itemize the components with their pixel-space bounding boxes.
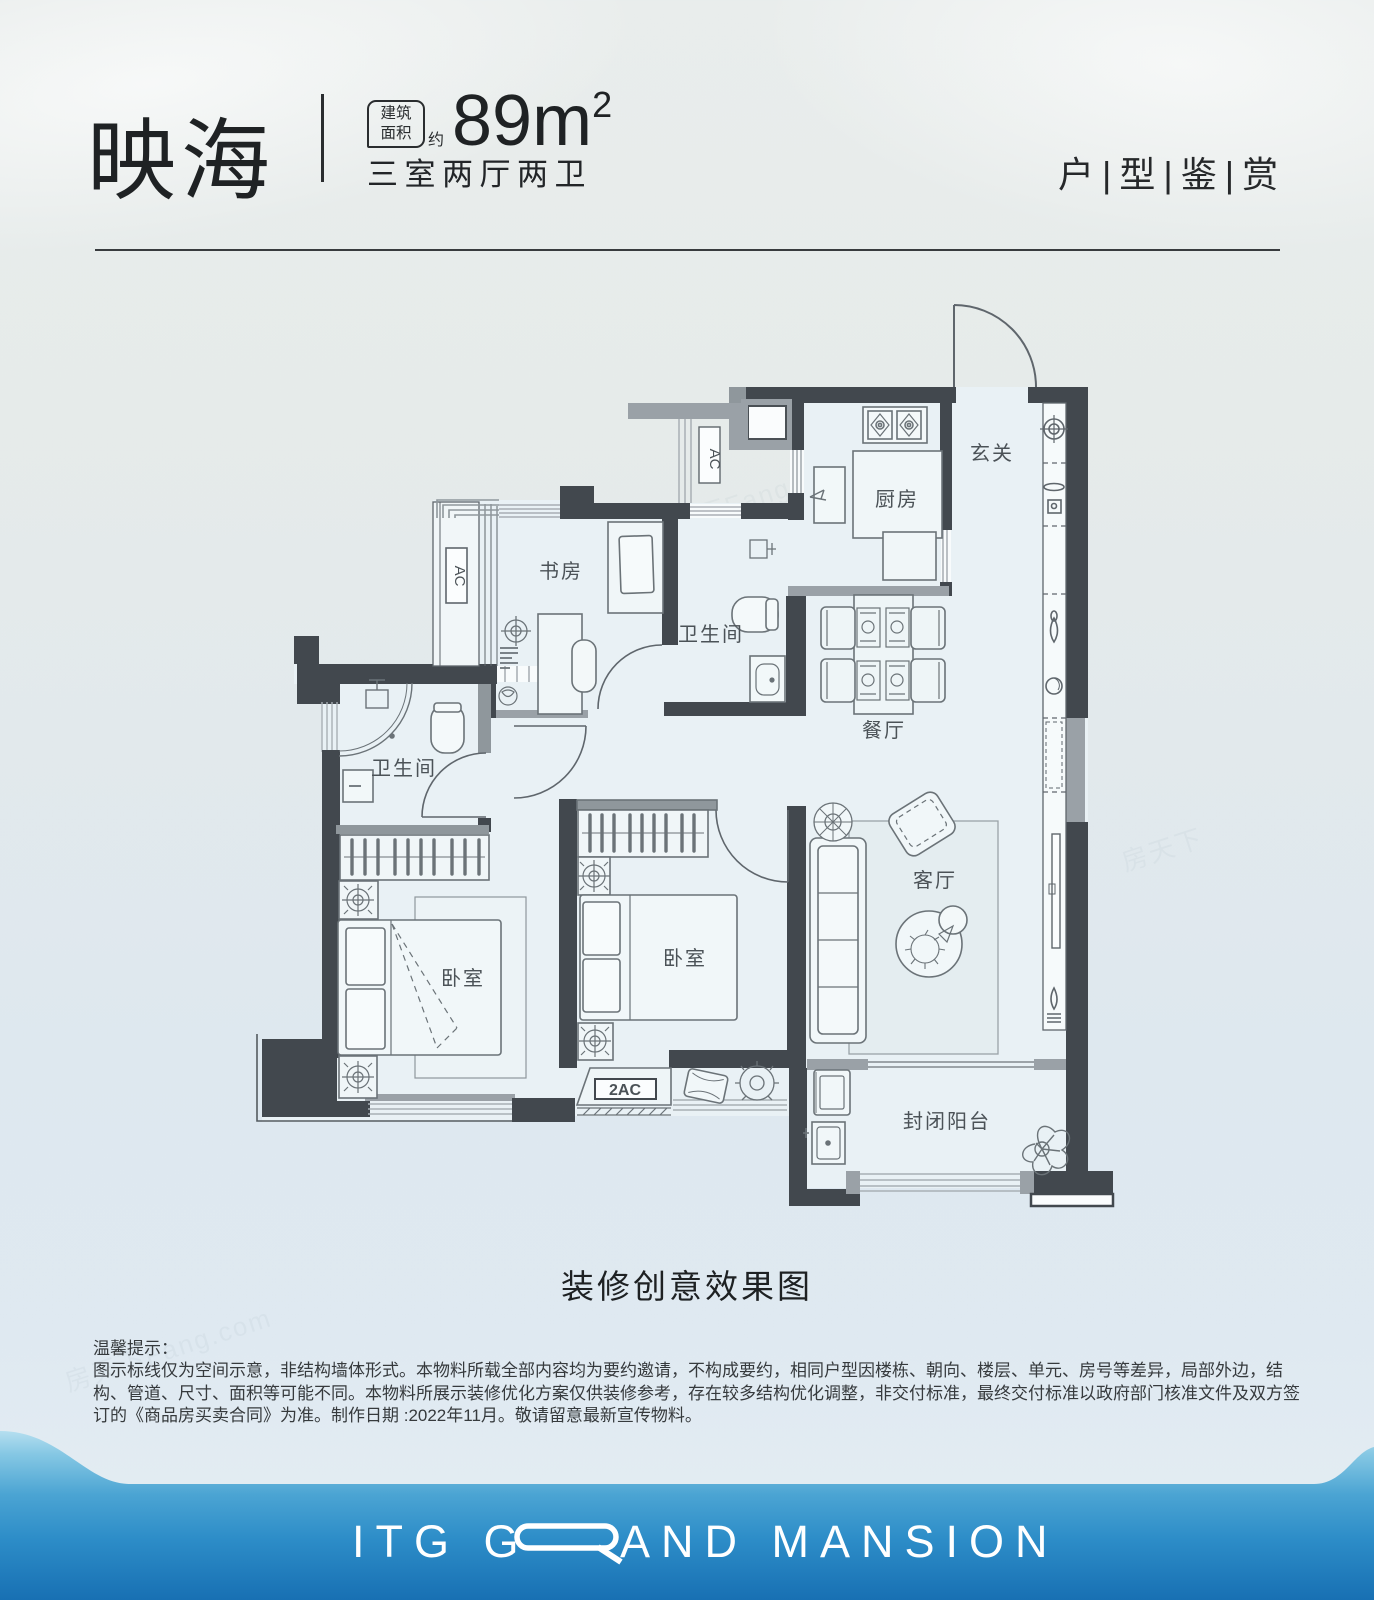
svg-text:餐厅: 餐厅	[862, 719, 906, 742]
svg-text:厨房: 厨房	[875, 488, 919, 511]
svg-text:ITG G: ITG G	[352, 1516, 530, 1567]
svg-text:书房: 书房	[539, 560, 583, 583]
svg-text:玄关: 玄关	[970, 442, 1014, 465]
svg-text:卫生间: 卫生间	[678, 623, 744, 646]
svg-text:AND MANSION: AND MANSION	[620, 1516, 1059, 1567]
svg-text:封闭阳台: 封闭阳台	[903, 1110, 991, 1133]
svg-text:卧室: 卧室	[441, 967, 485, 990]
svg-text:2AC: 2AC	[609, 1082, 641, 1099]
svg-text:卫生间: 卫生间	[371, 757, 437, 780]
svg-text:卧室: 卧室	[663, 947, 707, 970]
svg-text:AC: AC	[451, 566, 468, 587]
svg-text:AC: AC	[706, 449, 723, 470]
svg-text:客厅: 客厅	[913, 869, 957, 892]
